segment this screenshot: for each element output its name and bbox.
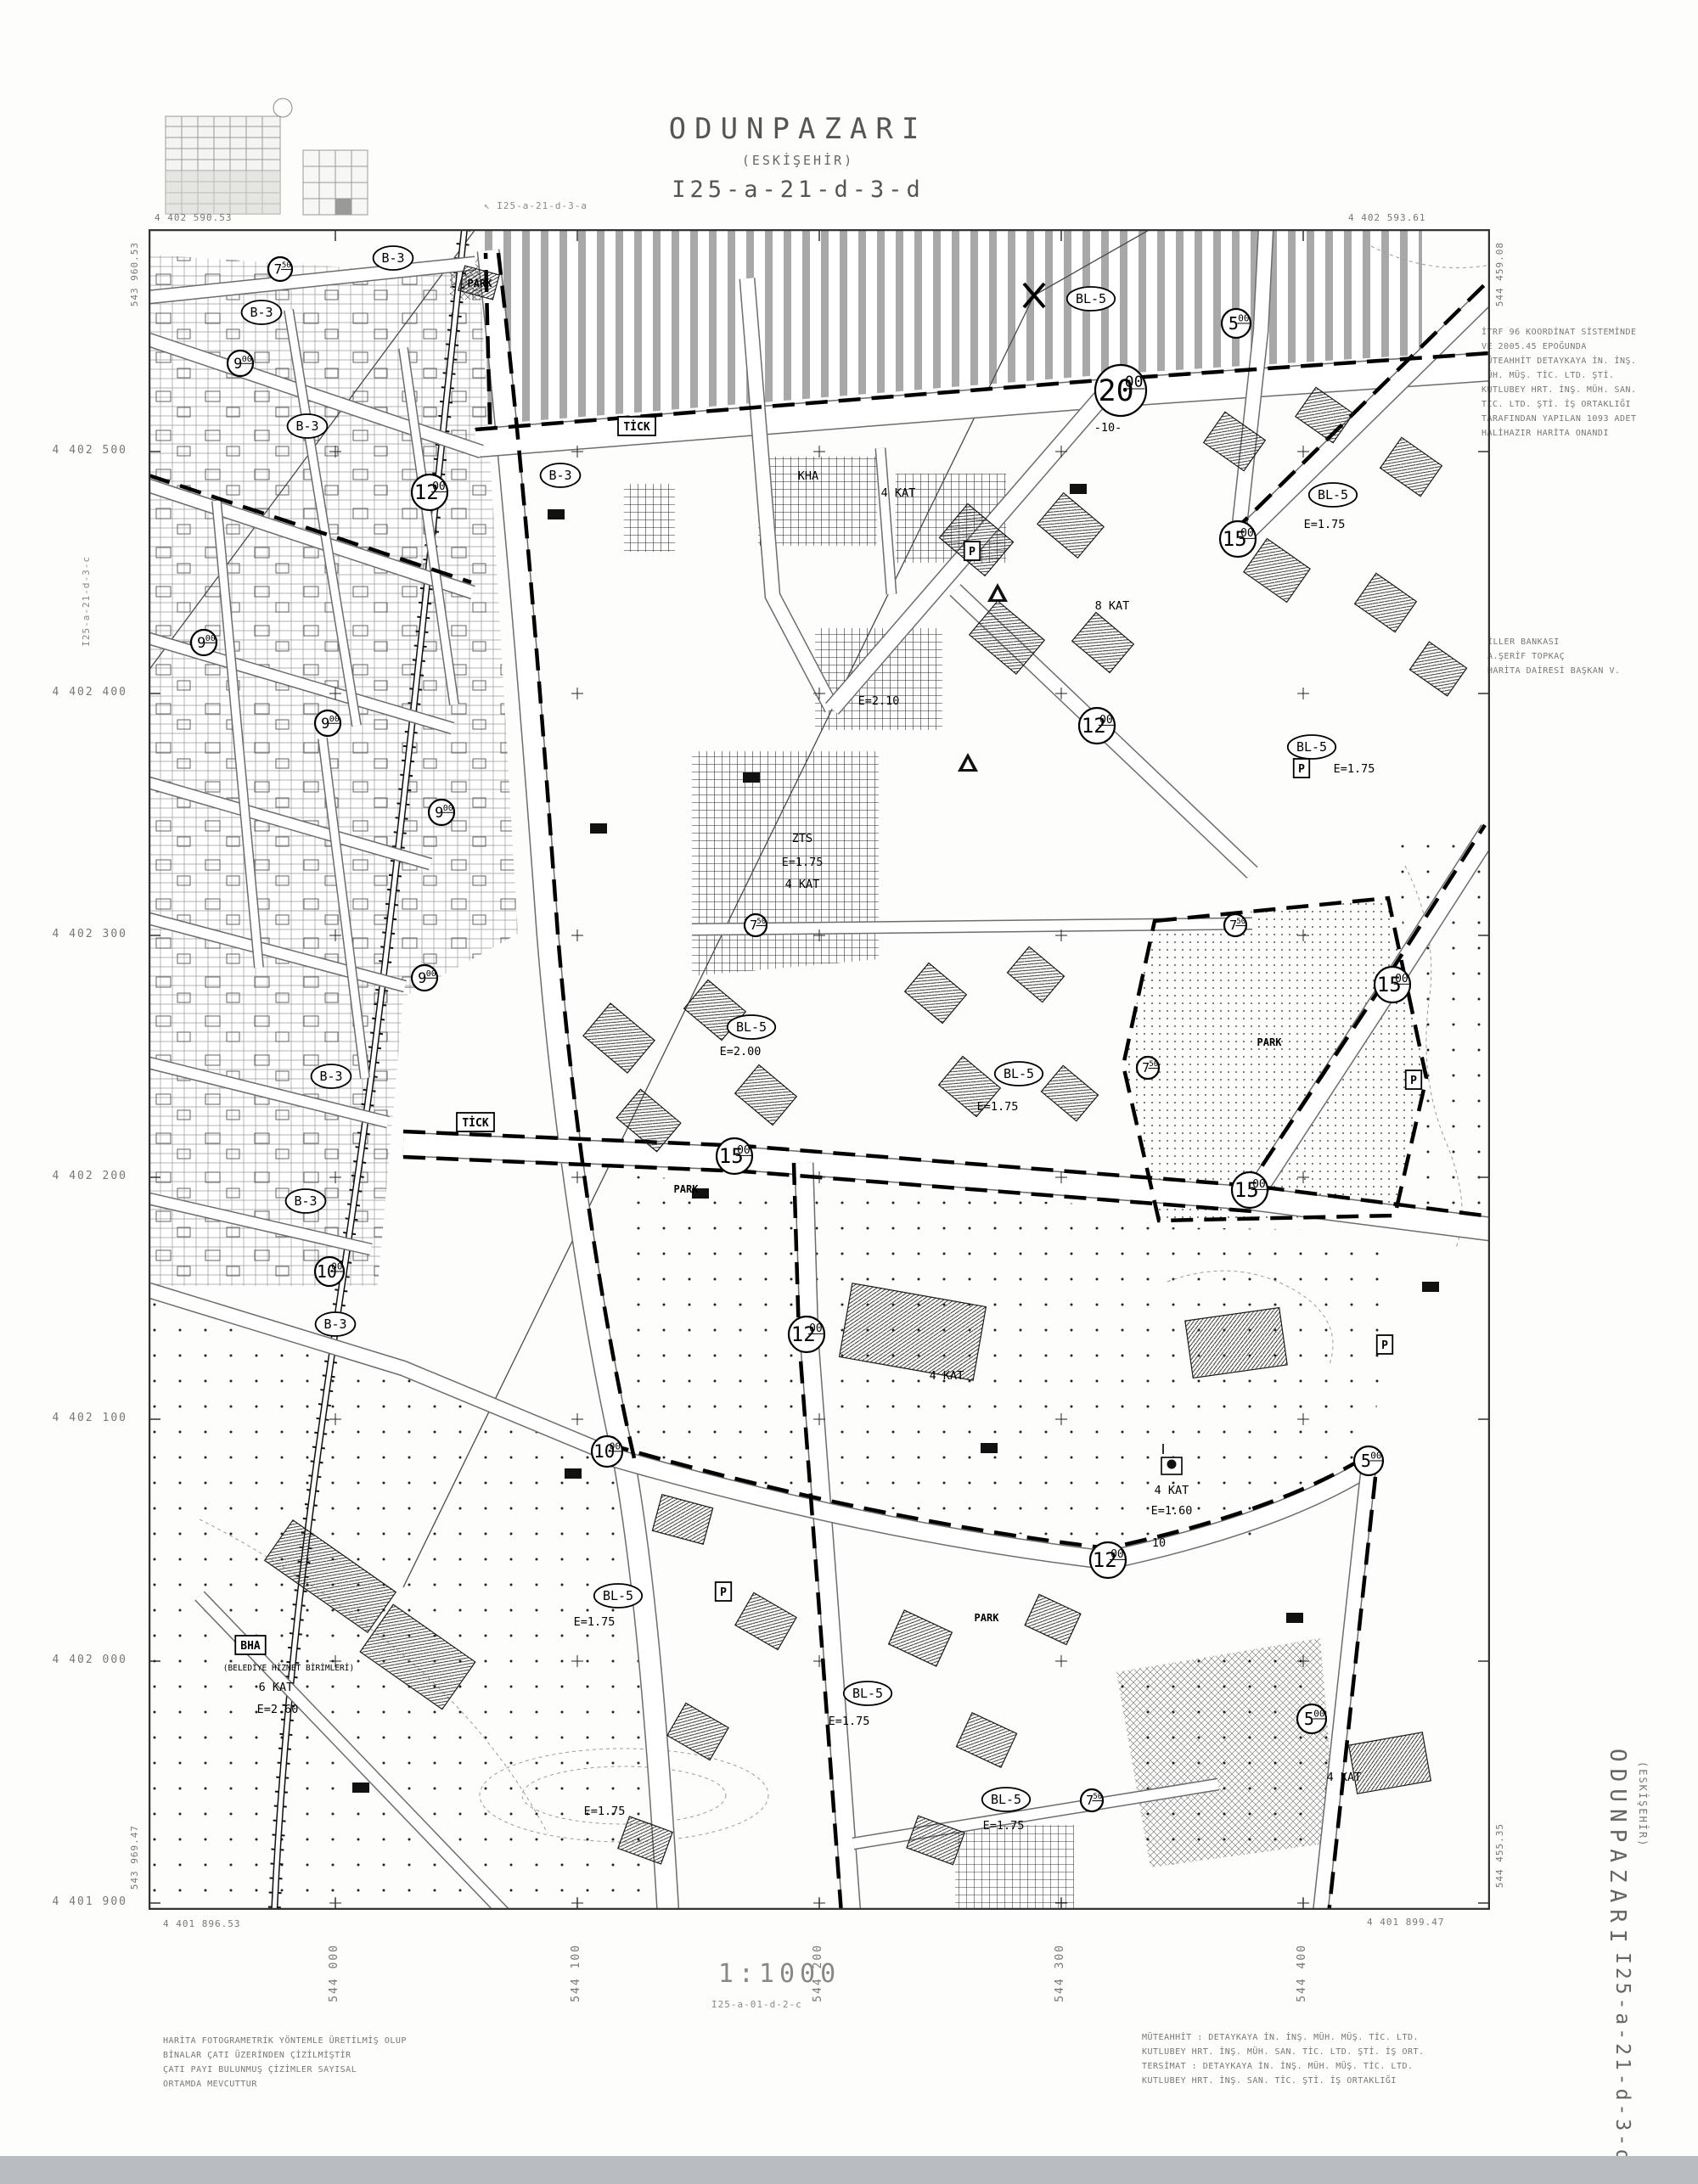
road-width-decimals: 00 — [426, 969, 436, 979]
note-contractor-line: KUTLUBEY HRT. İNŞ. MÜH. SAN. TİC. LTD. Ş… — [1142, 2045, 1425, 2059]
facility-box-label: P — [1381, 1339, 1388, 1352]
index-grid-large — [166, 98, 292, 214]
building-hatched — [1037, 493, 1104, 559]
zone-code-label: B-3 — [548, 468, 571, 483]
building-hatched — [735, 1592, 796, 1649]
facility-box-label: P — [1298, 763, 1305, 776]
note-approval-line: VE 2005.45 EPOĞUNDA — [1482, 340, 1637, 354]
building-hatched — [956, 1713, 1016, 1767]
corner-coord-se-e: 544 455.35 — [1494, 1823, 1505, 1888]
zone-text-label: 10 — [1152, 1536, 1166, 1550]
corner-coord-nw-e: 543 960.53 — [129, 242, 140, 306]
road-width-decimals: 50 — [1236, 918, 1245, 926]
grid-cross — [813, 446, 825, 458]
grid-cross — [1297, 688, 1309, 699]
corner-coord-nw-n: 4 402 590.53 — [155, 212, 232, 223]
building-hatched — [1072, 613, 1134, 673]
facility-box-label: P — [969, 546, 976, 559]
road-width-decimals: 00 — [1099, 714, 1113, 727]
zone-text-label: 4 KAT — [1155, 1484, 1189, 1497]
vertical-sheet-title: ODUNPAZARI — [1605, 1749, 1630, 1950]
zone-text-label: (BELEDİYE HİZMET BİRİMLERİ) — [223, 1664, 354, 1673]
sheet-subtitle: (ESKİŞEHİR) — [543, 153, 1053, 168]
road-width-decimals: 00 — [1110, 1548, 1124, 1561]
grid-easting-label: 544 000 — [328, 1944, 340, 2002]
index-current-sheet-cell — [335, 199, 351, 215]
road-width-decimals: 50 — [1149, 1060, 1158, 1069]
corner-coord-sw-n: 4 401 896.53 — [163, 1918, 240, 1929]
building-hatched — [652, 1495, 712, 1545]
zone-code-label: BL-5 — [1296, 739, 1327, 755]
park-label: PARK — [468, 278, 493, 289]
zone-text-label: E=1.75 — [574, 1615, 616, 1629]
zone-code-label: BL-5 — [736, 1019, 767, 1035]
facility-box-label: TİCK — [462, 1116, 488, 1130]
grid-northing-label: 4 402 200 — [47, 1170, 127, 1182]
zone-code-label: B-3 — [250, 305, 273, 320]
zone-text-label: KHA — [798, 469, 818, 483]
building-hatched — [1380, 437, 1442, 496]
road-width-decimals: 50 — [1093, 1793, 1102, 1801]
grid-northing-label: 4 402 400 — [47, 686, 127, 699]
grid-northing-label: 4 402 100 — [47, 1412, 127, 1424]
zone-code-label: BL-5 — [852, 1686, 883, 1701]
zone-text-label: E=2.00 — [720, 1045, 762, 1058]
road-width-decimals: 00 — [443, 804, 453, 813]
note-authority-line: İLLER BANKASI — [1487, 635, 1621, 649]
zone-code-label: B-3 — [323, 1317, 346, 1332]
building-hatched — [1025, 1594, 1081, 1644]
vertical-sheet-subtitle: (ESKİŞEHİR) — [1637, 1761, 1649, 1847]
road-width-decimals: 00 — [1240, 527, 1254, 540]
grid-northing-label: 4 402 000 — [47, 1653, 127, 1666]
note-approval-line: HALİHAZIR HARİTA ONANDI — [1482, 426, 1637, 441]
note-approval-line: MÜTEAHHİT DETAYKAYA İN. İNŞ. — [1482, 354, 1637, 368]
sheet-index-diagrams — [157, 89, 378, 229]
building-solid — [981, 1443, 998, 1453]
zone-code-label: B-3 — [319, 1069, 342, 1084]
building-solid — [1286, 1613, 1303, 1623]
adjacent-sheet-top: ↖ I25-a-21-d-3-a — [484, 200, 588, 211]
zone-text-label: E=1.75 — [1304, 518, 1346, 531]
title-block: ODUNPAZARI (ESKİŞEHİR) I25-a-21-d-3-d — [543, 112, 1053, 203]
zone-text-label: 8 KAT — [1095, 599, 1130, 613]
facility-box-label: BHA — [240, 1640, 261, 1653]
zone-text-label: 4 KAT — [930, 1369, 964, 1383]
road-width-decimals: 00 — [432, 480, 446, 493]
facility-box-label: TİCK — [623, 420, 649, 434]
road-width-decimals: 50 — [282, 261, 291, 270]
zone-text-label: 6 KAT — [259, 1681, 294, 1694]
sheet-title: ODUNPAZARI — [543, 112, 1053, 146]
note-contractor-line: MÜTEAHHİT : DETAYKAYA İN. İNŞ. MÜH. MÜŞ.… — [1142, 2030, 1425, 2045]
building-hatched — [889, 1610, 953, 1666]
zone-text-label: E=2.10 — [858, 694, 900, 708]
road-width-decimals: 00 — [1252, 1178, 1266, 1191]
zone-code-label: B-3 — [294, 1193, 317, 1209]
corner-coord-ne-n: 4 402 593.61 — [1348, 212, 1425, 223]
zone-text-label: 4 KAT — [785, 878, 820, 891]
road-width-decimals: 00 — [1313, 1708, 1324, 1719]
map-scale: 1:1000 — [694, 1959, 864, 1989]
grid-cross — [571, 929, 583, 941]
zone-text-label: E=1.75 — [1334, 762, 1375, 776]
corner-coord-ne-e: 544 459.08 — [1494, 242, 1505, 306]
zone-code-label: BL-5 — [1318, 487, 1348, 502]
zone-text-label: E=1.75 — [829, 1715, 870, 1728]
building-solid — [352, 1783, 369, 1793]
zone-text-label: E=1.75 — [983, 1819, 1025, 1833]
road-width-decimals: 00 — [242, 355, 252, 364]
zone-code-label: B-3 — [381, 250, 404, 266]
grid-easting-label: 544 100 — [570, 1944, 582, 2002]
building-solid — [743, 772, 760, 783]
grid-cross — [1055, 1655, 1067, 1667]
building-solid — [1422, 1282, 1439, 1292]
building-solid — [590, 823, 607, 834]
sheet-number: I25-a-21-d-3-d — [543, 177, 1053, 203]
facility-box-label: P — [720, 1586, 727, 1599]
note-authority: İLLER BANKASIA.ŞERİF TOPKAÇHARİTA DAİRES… — [1487, 635, 1621, 678]
zone-text-label: E=2.60 — [257, 1703, 299, 1716]
note-contractor: MÜTEAHHİT : DETAYKAYA İN. İNŞ. MÜH. MÜŞ.… — [1142, 2030, 1425, 2088]
zone-text-label: E=1.60 — [1151, 1504, 1193, 1518]
note-approval-line: MÜH. MÜŞ. TİC. LTD. ŞTİ. — [1482, 368, 1637, 383]
scan-edge-strip — [0, 2156, 1698, 2184]
road-surface — [880, 448, 891, 594]
map-canvas: 2000150050012007509009009009009001000120… — [149, 229, 1490, 1910]
note-production: HARİTA FOTOGRAMETRİK YÖNTEMLE ÜRETİLMİŞ … — [163, 2034, 407, 2091]
note-production-line: HARİTA FOTOGRAMETRİK YÖNTEMLE ÜRETİLMİŞ … — [163, 2034, 407, 2048]
building-hatched — [905, 963, 967, 1024]
building-hatched — [1409, 642, 1466, 696]
road-width-decimals: 00 — [329, 715, 340, 724]
map-sheet-page: ODUNPAZARI (ESKİŞEHİR) I25-a-21-d-3-d ↖ … — [0, 0, 1698, 2184]
building-solid — [565, 1468, 582, 1479]
road-width-decimals: 00 — [1395, 973, 1408, 985]
building-solid — [1070, 484, 1087, 494]
grid-cross — [1297, 446, 1309, 458]
road-width-decimals: 00 — [737, 1144, 751, 1157]
note-production-line: ORTAMDA MEVCUTTUR — [163, 2077, 407, 2091]
grid-northing-label: 4 402 500 — [47, 444, 127, 457]
zone-text-label: E=1.75 — [782, 856, 824, 869]
adjacent-sheet-bottom: I25-a-01-d-2-c — [711, 1999, 802, 2010]
note-approval: İTRF 96 KOORDİNAT SİSTEMİNDEVE 2005.45 E… — [1482, 325, 1637, 441]
park-label: PARK — [975, 1612, 1000, 1624]
zone-text-label: E=1.75 — [977, 1100, 1019, 1114]
road-width-decimals: 00 — [1125, 373, 1144, 391]
note-contractor-line: KUTLUBEY HRT. İNŞ. SAN. TİC. ŞTİ. İŞ ORT… — [1142, 2074, 1425, 2088]
zone-text-label: E=1.75 — [584, 1805, 626, 1818]
road-width-value: 7 — [274, 261, 283, 277]
building-hatched — [1041, 1065, 1098, 1120]
grid-cross — [571, 688, 583, 699]
road-surface — [692, 924, 1252, 929]
zone-text-label: 4 KAT — [881, 486, 916, 500]
building-hatched — [1349, 1732, 1431, 1794]
zone-code-label: BL-5 — [991, 1792, 1021, 1807]
road-width-decimals: 00 — [809, 1322, 823, 1335]
park-label: PARK — [1257, 1036, 1283, 1048]
zone-code-label: BL-5 — [603, 1588, 633, 1603]
park-label: PARK — [674, 1183, 700, 1195]
corner-coord-sw-e: 543 969.47 — [129, 1825, 140, 1889]
building-hatched — [583, 1003, 655, 1073]
zone-text-label: ZTS — [792, 832, 812, 845]
road-surface — [1320, 1467, 1369, 1910]
grid-cross — [571, 1413, 583, 1425]
adjacent-sheet-left: I25-a-21-d-3-c — [81, 556, 92, 647]
mosque-dome — [1167, 1460, 1177, 1469]
note-approval-line: İTRF 96 KOORDİNAT SİSTEMİNDE — [1482, 325, 1637, 340]
road-width-decimals: 00 — [610, 1440, 621, 1451]
building-hatched — [735, 1065, 797, 1126]
road-width-decimals: 00 — [1370, 1450, 1381, 1461]
note-approval-line: TARAFINDAN YAPILAN 1093 ADET — [1482, 412, 1637, 426]
grid-northing-label: 4 401 900 — [47, 1895, 127, 1908]
zone-code-label: B-3 — [295, 418, 318, 434]
road-width-decimals: 50 — [756, 918, 766, 926]
corner-coord-se-n: 4 401 899.47 — [1367, 1917, 1444, 1928]
note-approval-line: KUTLUBEY HRT. İNŞ. MÜH. SAN. — [1482, 383, 1637, 397]
zone-text-label: -10- — [1094, 421, 1122, 435]
note-authority-line: A.ŞERİF TOPKAÇ — [1487, 649, 1621, 664]
road-width-decimals: 00 — [1238, 312, 1249, 323]
grid-northing-label: 4 402 300 — [47, 928, 127, 940]
note-approval-line: TİC. LTD. ŞTİ. İŞ ORTAKLIĞI — [1482, 397, 1637, 412]
building-solid — [548, 509, 565, 519]
facility-box-label: P — [1410, 1075, 1417, 1087]
grid-easting-label: 544 300 — [1054, 1944, 1066, 2002]
road-width-decimals: 00 — [205, 634, 216, 643]
grid-easting-label: 544 200 — [812, 1944, 824, 2002]
grid-easting-label: 544 400 — [1296, 1944, 1308, 2002]
zone-code-label: BL-5 — [1076, 291, 1106, 306]
zone-text-label: 4 KAT — [1327, 1771, 1362, 1784]
building-hatched — [1007, 946, 1064, 1002]
building-hatched — [1355, 573, 1417, 632]
zone-code-label: BL-5 — [1004, 1066, 1034, 1081]
note-production-line: BİNALAR ÇATI ÜZERİNDEN ÇİZİLMİŞTİR — [163, 2048, 407, 2063]
note-contractor-line: TERSİMAT : DETAYKAYA İN. İNŞ. MÜH. MÜŞ. … — [1142, 2059, 1425, 2074]
road-width-decimals: 00 — [331, 1260, 342, 1272]
note-authority-line: HARİTA DAİRESİ BAŞKAN V. — [1487, 664, 1621, 678]
note-production-line: ÇATI PAYI BULUNMUŞ ÇİZİMLER SAYISAL — [163, 2063, 407, 2077]
index-grid-small — [303, 150, 368, 215]
vertical-sheet-number: I25-a-21-d-3-d — [1611, 1952, 1633, 2164]
